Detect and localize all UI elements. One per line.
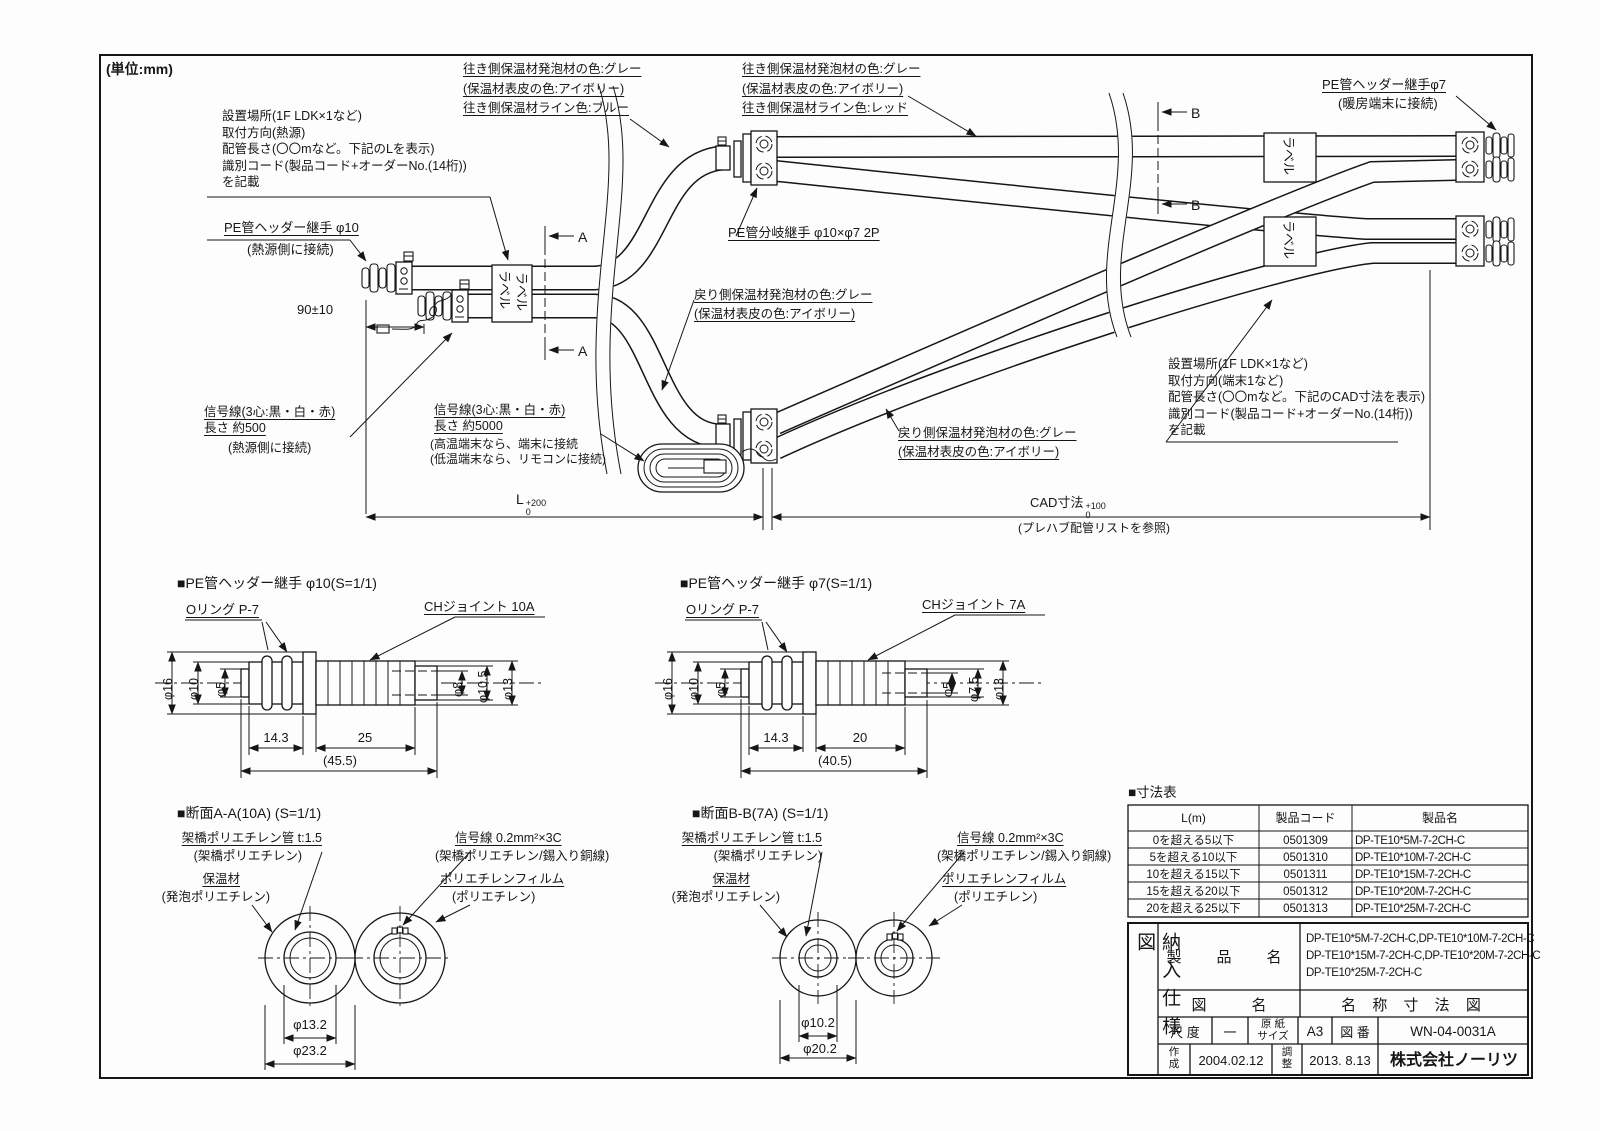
dim-cad-base: CAD寸法	[1030, 495, 1083, 510]
supply-note-left: 往き側保温材発泡材の色:グレー (保温材表皮の色:アイボリー) 往き側保温材ライ…	[463, 60, 641, 119]
branch-callout: PE管分岐継手 φ10×φ7 2P	[728, 224, 880, 241]
detail7-joint: CHジョイント 7A	[922, 596, 1025, 613]
detail10-d13: φ13	[500, 678, 517, 700]
detail7-d16: φ16	[660, 678, 677, 700]
paper-size-label: 原 紙 サイズ	[1248, 1019, 1298, 1042]
scale-label: 尺 度	[1158, 1024, 1212, 1041]
pipe-label-left-2: ラベル	[513, 272, 530, 311]
section-b-letter-top: B	[1191, 104, 1200, 122]
detail10-w2: 25	[330, 729, 400, 746]
secA-d2: φ23.2	[275, 1042, 345, 1059]
secB-signal-sub: (架橋ポリエチレン/錫入り銅線)	[937, 848, 1111, 865]
return-note-right: 戻り側保温材発泡材の色:グレー (保温材表皮の色:アイボリー)	[898, 424, 1076, 462]
pipe-label-right-upper: ラベル	[1280, 136, 1297, 175]
scale-value: 一	[1212, 1024, 1248, 1041]
table-row: 0501311	[1259, 868, 1352, 883]
header7-callout: PE管ヘッダー継手φ7	[1322, 76, 1446, 93]
secA-d1: φ13.2	[275, 1016, 345, 1033]
detail7-w2: 20	[825, 729, 895, 746]
detail7-title: ■PE管ヘッダー継手 φ7(S=1/1)	[680, 574, 872, 592]
unit-note: (単位:mm)	[106, 60, 173, 78]
detail10-wt: (45.5)	[305, 752, 375, 769]
company-logo: 株式会社ノーリツ	[1380, 1050, 1528, 1071]
secA-signal: 信号線 0.2mm²×3C	[455, 830, 562, 847]
detail7-oring: Oリング P-7	[686, 601, 759, 618]
cad-note: (プレハブ配管リストを参照)	[1018, 521, 1170, 537]
detail7-d13: φ13	[991, 678, 1008, 700]
detail10-d16: φ16	[160, 678, 177, 700]
secA-film: ポリエチレンフィルム	[440, 871, 564, 888]
secB-d2: φ20.2	[783, 1040, 857, 1057]
drawing-sheet: .ln{stroke:#161616;stroke-width:1.3;fill…	[0, 0, 1600, 1131]
secB-insul: 保温材	[650, 871, 750, 888]
return-note-mid: 戻り側保温材発泡材の色:グレー (保温材表皮の色:アイボリー)	[694, 286, 872, 324]
left-header-fittings	[362, 252, 469, 333]
dim-cad-dn: 0	[1085, 511, 1105, 520]
drawing-no: WN-04-0031A	[1378, 1023, 1528, 1041]
secB-title: ■断面B-B(7A) (S=1/1)	[692, 804, 828, 822]
adjusted-label: 調 整	[1272, 1047, 1302, 1070]
detail10-title: ■PE管ヘッダー継手 φ10(S=1/1)	[177, 574, 377, 592]
table-row: 0を超える5以下	[1128, 834, 1259, 849]
drawing-no-label: 図 番	[1332, 1024, 1378, 1041]
section-b-letter-bottom: B	[1191, 196, 1200, 214]
secB-signal: 信号線 0.2mm²×3C	[957, 830, 1064, 847]
right-header-fittings	[1456, 132, 1514, 266]
header7-sub: (暖房端末に接続)	[1338, 95, 1438, 112]
section-a-letter-bottom: A	[578, 342, 587, 360]
detail7-d75: φ7.5	[966, 677, 983, 702]
secB-d1: φ10.2	[783, 1014, 853, 1031]
table-row: 0501310	[1259, 851, 1352, 866]
dim-l-dn: 0	[526, 508, 546, 517]
size-table-h3: 製品名	[1352, 811, 1528, 827]
section-a-letter-top: A	[578, 228, 587, 246]
adjusted-date: 2013. 8.13	[1302, 1052, 1378, 1069]
table-row: 0501312	[1259, 885, 1352, 900]
table-row: 0501313	[1259, 902, 1352, 917]
secB-insul-sub: (発泡ポリエチレン)	[628, 889, 780, 906]
table-row: 10を超える15以下	[1128, 868, 1259, 883]
dim-cad: CAD寸法+1000	[1030, 494, 1106, 521]
secA-pipe-sub: (架橋ポリエチレン)	[118, 848, 302, 865]
dim-l: L+2000	[516, 490, 546, 518]
pipe-label-left-1: ラベル	[496, 270, 513, 309]
table-row: 0501309	[1259, 834, 1352, 849]
detail10-oring: Oリング P-7	[186, 601, 259, 618]
section-a-a	[252, 852, 470, 1070]
size-table-h1: L(m)	[1128, 811, 1259, 827]
drawing-name: 名 称 寸 法 図	[1300, 996, 1528, 1016]
secB-pipe-sub: (架橋ポリエチレン)	[638, 848, 822, 865]
detail7-d5a: φ5	[713, 682, 730, 697]
detail7-d10: φ10	[686, 678, 703, 700]
paper-size-value: A3	[1298, 1023, 1332, 1041]
signal-note-left-sub: (熱源側に接続)	[228, 440, 311, 457]
table-row: DP-TE10*10M-7-2CH-C	[1355, 851, 1471, 866]
signal-note-left: 信号線(3心:黒・白・赤) 長さ 約500	[204, 404, 335, 436]
table-row: DP-TE10*20M-7-2CH-C	[1355, 885, 1471, 900]
secB-film: ポリエチレンフィルム	[942, 871, 1066, 888]
table-row: 20を超える25以下	[1128, 902, 1259, 917]
section-b-b	[760, 852, 964, 1064]
secA-film-sub: (ポリエチレン)	[452, 889, 535, 906]
detail10-w1: 14.3	[246, 729, 306, 746]
secA-signal-sub: (架橋ポリエチレン/錫入り銅線)	[435, 848, 609, 865]
header10-sub: (熱源側に接続)	[247, 241, 334, 258]
table-row: 15を超える20以下	[1128, 885, 1259, 900]
created-label: 作 成	[1158, 1047, 1190, 1070]
product-name-label: 製 品 名	[1158, 948, 1300, 968]
install-note-left: 設置場所(1F LDK×1など) 取付方向(熱源) 配管長さ(〇〇mなど。下記の…	[222, 108, 467, 191]
product-names: DP-TE10*5M-7-2CH-C,DP-TE10*10M-7-2CH-C D…	[1306, 931, 1540, 982]
detail10-joint: CHジョイント 10A	[424, 598, 535, 615]
detail10-d105: φ10.5	[475, 671, 492, 703]
supply-note-right: 往き側保温材発泡材の色:グレー (保温材表皮の色:アイボリー) 往き側保温材ライ…	[742, 60, 920, 119]
secA-insul: 保温材	[140, 871, 240, 888]
detail10-d5: φ5	[213, 682, 230, 697]
size-table-h2: 製品コード	[1259, 811, 1352, 827]
detail7-w1: 14.3	[746, 729, 806, 746]
secA-title: ■断面A-A(10A) (S=1/1)	[177, 804, 321, 822]
size-table-title: ■寸法表	[1128, 784, 1177, 802]
drawing-name-label: 図 名	[1158, 996, 1300, 1016]
detail7-d5b: φ5	[940, 682, 957, 697]
install-note-right: 設置場所(1F LDK×1など) 取付方向(端末1など) 配管長さ(〇〇mなど。…	[1168, 356, 1425, 439]
secA-pipe: 架橋ポリエチレン管 t:1.5	[118, 830, 322, 847]
secB-film-sub: (ポリエチレン)	[954, 889, 1037, 906]
secA-insul-sub: (発泡ポリエチレン)	[118, 889, 270, 906]
table-row: DP-TE10*15M-7-2CH-C	[1355, 868, 1471, 883]
dim-90: 90±10	[297, 301, 333, 318]
created-date: 2004.02.12	[1190, 1052, 1272, 1069]
table-row: DP-TE10*25M-7-2CH-C	[1355, 902, 1471, 917]
detail10-d8: φ8	[450, 682, 467, 697]
detail10-d10: φ10	[186, 678, 203, 700]
table-row: 5を超える10以下	[1128, 851, 1259, 866]
header10-callout: PE管ヘッダー継手 φ10	[224, 219, 359, 236]
dim-l-base: L	[516, 491, 524, 507]
secB-pipe: 架橋ポリエチレン管 t:1.5	[618, 830, 822, 847]
pipe-label-right-lower: ラベル	[1280, 220, 1297, 259]
signal-note-mid-sub: (高温端末なら、端末に接続 (低温端末なら、リモコンに接続)	[430, 437, 606, 467]
detail7-wt: (40.5)	[800, 752, 870, 769]
table-row: DP-TE10*5M-7-2CH-C	[1355, 834, 1465, 849]
signal-note-mid: 信号線(3心:黒・白・赤) 長さ 約5000	[434, 402, 565, 434]
